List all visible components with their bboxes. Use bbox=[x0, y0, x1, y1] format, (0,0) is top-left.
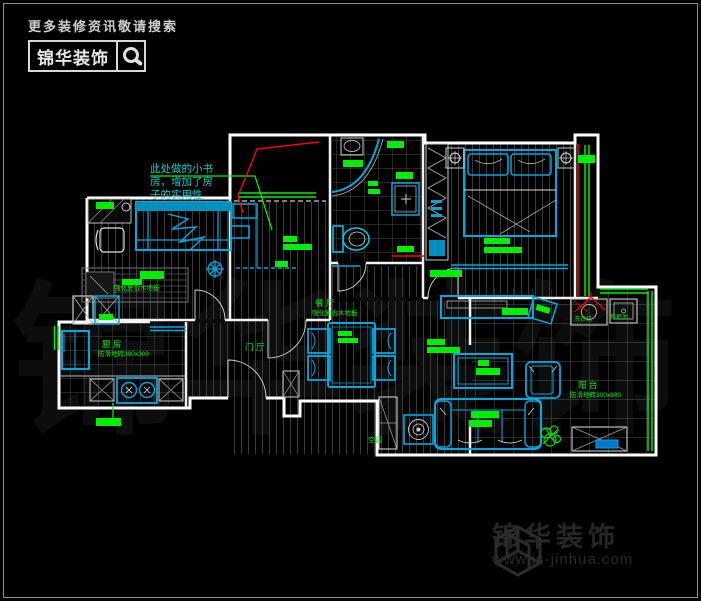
brand-name: 锦华装饰 bbox=[30, 44, 116, 69]
screenshot-canvas: 锦华装饰 bbox=[0, 0, 701, 601]
label-mop-pool: 拖把池 bbox=[610, 313, 628, 321]
label-kitchen: 厨 房 bbox=[102, 339, 121, 349]
label-dining: 餐 厅 bbox=[315, 298, 335, 308]
label-balcony-floor: 防滑地砖300x600 bbox=[570, 390, 621, 399]
wardrobe bbox=[426, 144, 448, 260]
label-foyer: 门 厅 bbox=[245, 342, 265, 352]
label-bedroom-floor: 强化复合木地板 bbox=[114, 283, 160, 292]
cube-logo-icon bbox=[492, 524, 544, 578]
label-dining-floor: 强化复合木地板 bbox=[312, 308, 358, 317]
label-balcony: 阳 台 bbox=[578, 380, 597, 390]
search-icon bbox=[118, 43, 144, 69]
footer-watermark-logo: 锦华装饰 www.js-jinhua.com bbox=[492, 524, 633, 568]
annotation-line1: 此处做的小书 bbox=[150, 162, 213, 175]
annotation-line2: 房，增加了房 bbox=[150, 175, 213, 188]
annotation-line3: 子的实用性 bbox=[150, 188, 203, 201]
search-banner: 更多装修资讯敬请搜索 锦华装饰 bbox=[28, 16, 178, 72]
brand-search-box: 锦华装饰 bbox=[28, 40, 146, 72]
floor-plan: 此处做的小书 房，增加了房 子的实用性 餐 厅 强化复合木地板 门 厅 厨 房 … bbox=[0, 0, 701, 601]
label-kitchen-floor: 防滑地砖300x300 bbox=[98, 349, 149, 358]
label-washer: 洗衣机 bbox=[574, 315, 592, 323]
label-ac: 空调 bbox=[368, 435, 382, 444]
banner-tagline: 更多装修资讯敬请搜索 bbox=[28, 16, 178, 35]
